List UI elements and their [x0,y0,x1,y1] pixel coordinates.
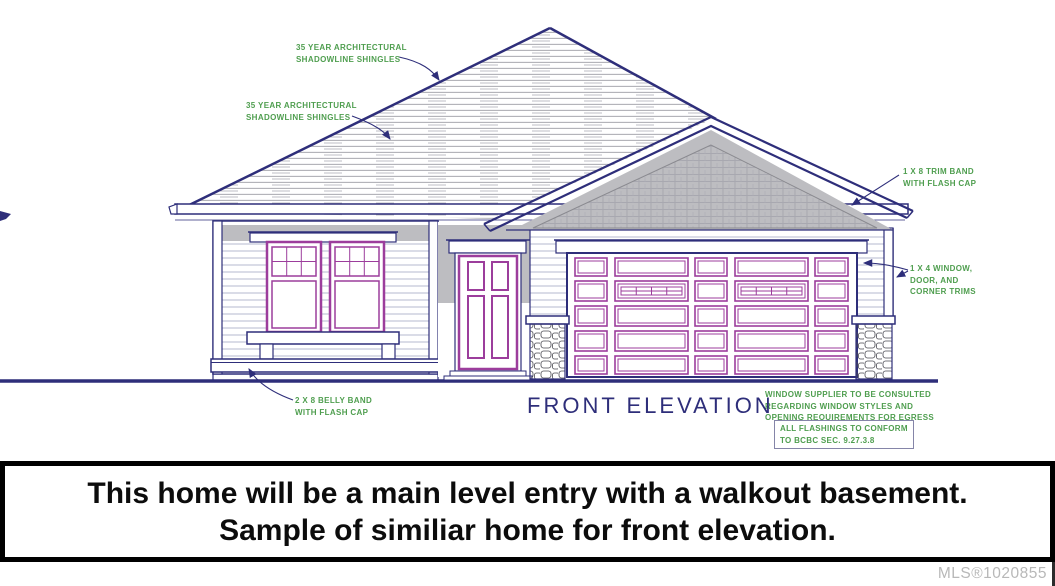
belly-band [211,359,440,380]
annotation-shingles-upper: 35 YEAR ARCHITECTURAL SHADOWLINE SHINGLE… [296,42,407,65]
caption-line-1: This home will be a main level entry wit… [87,475,967,512]
annotation-belly-band: 2 X 8 BELLY BAND WITH FLASH CAP [295,395,372,418]
caption-banner: This home will be a main level entry wit… [0,461,1055,562]
listing-image: 35 YEAR ARCHITECTURAL SHADOWLINE SHINGLE… [0,0,1055,586]
left-wing-wall [213,221,438,374]
front-elevation-drawing: 35 YEAR ARCHITECTURAL SHADOWLINE SHINGLE… [0,0,1055,461]
caption-line-2: Sample of similiar home for front elevat… [219,512,836,549]
annotation-window-supplier: WINDOW SUPPLIER TO BE CONSULTED REGARDIN… [765,389,934,424]
annotation-window-trims: 1 X 4 WINDOW, DOOR, AND CORNER TRIMS [910,263,976,298]
left-edge-mark [0,211,11,221]
annotation-shingles-lower: 35 YEAR ARCHITECTURAL SHADOWLINE SHINGLE… [246,100,357,123]
entry-door [438,222,532,380]
annotation-trim-band: 1 X 8 TRIM BAND WITH FLASH CAP [903,166,976,189]
garage-door [567,253,857,377]
mls-number: MLS®1020855 [938,565,1047,583]
mls-footer: MLS®1020855 [0,562,1055,586]
annotation-flashing-box: ALL FLASHINGS TO CONFORM TO BCBC SEC. 9.… [774,420,914,449]
drawing-title: FRONT ELEVATION [527,393,774,419]
